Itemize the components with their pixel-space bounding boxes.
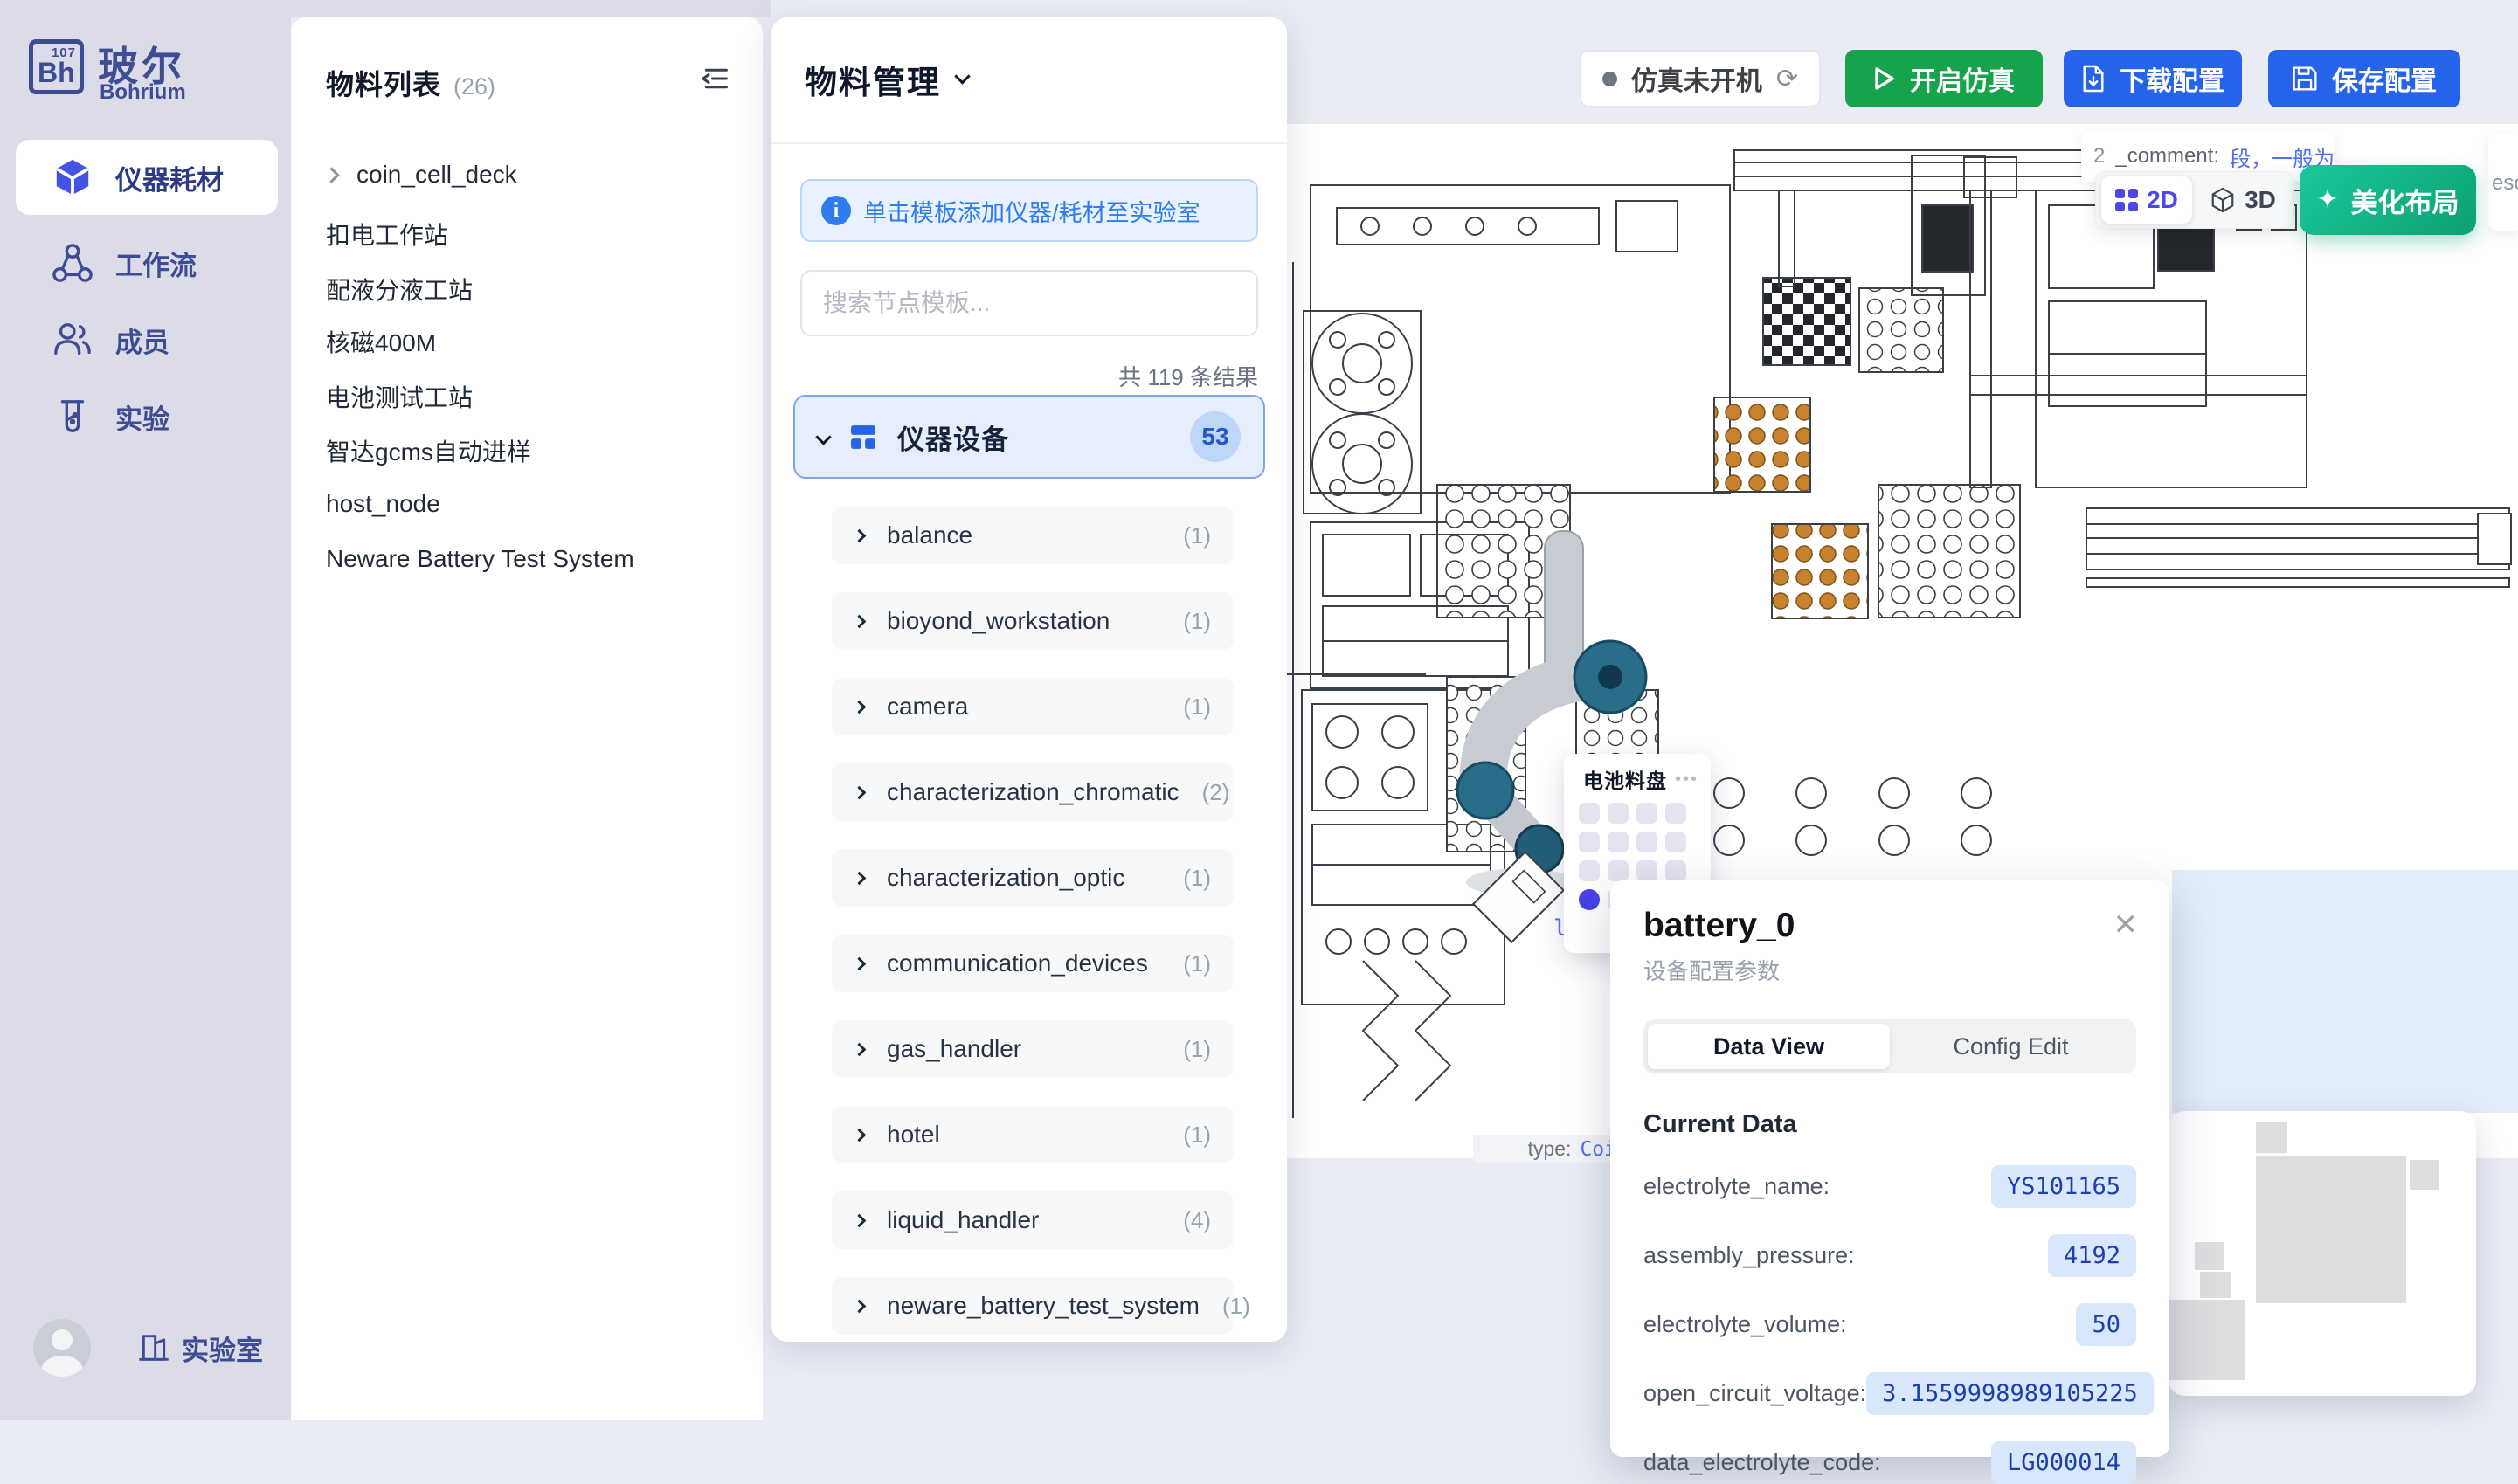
sidebar-item-instruments[interactable]: 仪器耗材 bbox=[16, 140, 278, 215]
template-item-label: communication_devices bbox=[887, 949, 1160, 977]
sidebar-item-label: 仪器耗材 bbox=[115, 158, 224, 197]
material-item-label: 核磁400M bbox=[326, 324, 436, 359]
template-item-hotel[interactable]: hotel (1) bbox=[832, 1106, 1234, 1163]
template-item-count: (1) bbox=[1183, 608, 1211, 635]
material-item[interactable]: 扣电工作站 bbox=[326, 215, 728, 253]
materials-count: (26) bbox=[453, 73, 495, 100]
grid-2d-icon bbox=[2115, 189, 2138, 211]
template-item-liquid-handler[interactable]: liquid_handler (4) bbox=[832, 1191, 1234, 1249]
data-row-value: 50 bbox=[2076, 1303, 2136, 1346]
data-row: open_circuit_voltage: 3.1559998989105225 bbox=[1643, 1372, 2136, 1415]
template-panel: 物料管理 i 单击模板添加仪器/耗材至实验室 共 119 条结果 仪器设备 53… bbox=[771, 17, 1287, 1342]
save-icon bbox=[2292, 66, 2318, 92]
template-item-characterization-optic[interactable]: characterization_optic (1) bbox=[832, 849, 1234, 907]
data-row: data_electrolyte_code: LG000014 bbox=[1643, 1441, 2136, 1484]
play-icon bbox=[1873, 66, 1896, 91]
download-config-label: 下载配置 bbox=[2120, 59, 2224, 98]
tray-cell[interactable] bbox=[1608, 832, 1629, 852]
save-config-button[interactable]: 保存配置 bbox=[2268, 50, 2460, 107]
material-item-label: Neware Battery Test System bbox=[326, 545, 634, 573]
category-label: 仪器设备 bbox=[897, 418, 1169, 457]
template-item-label: characterization_chromatic bbox=[887, 778, 1179, 806]
hint-banner-text: 单击模板添加仪器/耗材至实验室 bbox=[863, 194, 1200, 228]
toggle-2d[interactable]: 2D bbox=[2101, 176, 2192, 224]
toggle-3d[interactable]: 3D bbox=[2197, 176, 2288, 224]
template-item-count: (1) bbox=[1183, 1122, 1211, 1149]
chevron-right-icon bbox=[853, 1213, 867, 1227]
minimap-block bbox=[2195, 1242, 2224, 1270]
template-item-gas-handler[interactable]: gas_handler (1) bbox=[832, 1020, 1234, 1078]
chevron-right-icon bbox=[853, 1299, 867, 1313]
minimap-block bbox=[2256, 1122, 2287, 1153]
start-simulation-label: 开启仿真 bbox=[1910, 59, 2015, 98]
device-config-popup: battery_0 ✕ 设备配置参数 Data View Config Edit… bbox=[1610, 880, 2169, 1457]
template-item-label: balance bbox=[887, 521, 1160, 549]
template-item-count: (1) bbox=[1183, 1036, 1211, 1063]
chevron-right-icon bbox=[853, 956, 867, 970]
data-row-value: YS101165 bbox=[1991, 1165, 2136, 1208]
minimap-block bbox=[2256, 1156, 2406, 1303]
material-item-label: 电池测试工站 bbox=[326, 379, 473, 414]
sparkles-icon: ✦ bbox=[2316, 187, 2338, 213]
top-strip bbox=[291, 0, 771, 17]
avatar[interactable] bbox=[33, 1319, 91, 1377]
tray-cell[interactable] bbox=[1579, 803, 1600, 824]
tray-cell[interactable] bbox=[1636, 832, 1657, 852]
template-item-label: characterization_optic bbox=[887, 864, 1160, 892]
status-label: 仿真未开机 bbox=[1631, 59, 1762, 98]
lab-switcher-label: 实验室 bbox=[182, 1329, 263, 1368]
save-config-label: 保存配置 bbox=[2332, 59, 2437, 98]
minimap[interactable] bbox=[2169, 1111, 2476, 1396]
result-count: 共 119 条结果 bbox=[1118, 360, 1258, 392]
panel-title: 物料管理 bbox=[805, 56, 941, 103]
tray-cell[interactable] bbox=[1579, 860, 1600, 881]
data-row-label: data_electrolyte_code: bbox=[1643, 1449, 1881, 1476]
material-item-label: coin_cell_deck bbox=[356, 161, 517, 189]
chevron-right-icon bbox=[853, 614, 867, 628]
template-item-communication-devices[interactable]: communication_devices (1) bbox=[832, 935, 1234, 992]
data-row-value: LG000014 bbox=[1991, 1441, 2136, 1484]
chevron-down-icon bbox=[815, 429, 831, 445]
lab-switcher[interactable]: 实验室 bbox=[136, 1329, 263, 1368]
category-badge: 53 bbox=[1190, 411, 1241, 462]
template-item-label: liquid_handler bbox=[887, 1206, 1160, 1234]
template-item-count: (1) bbox=[1183, 950, 1211, 977]
beautify-layout-button[interactable]: ✦ 美化布局 bbox=[2300, 165, 2476, 235]
file-download-icon bbox=[2081, 65, 2106, 93]
refresh-icon[interactable]: ⟳ bbox=[1776, 64, 1798, 94]
category-instruments[interactable]: 仪器设备 53 bbox=[793, 395, 1265, 479]
cube-icon bbox=[52, 157, 93, 197]
workflow-icon bbox=[52, 243, 93, 283]
view-mode-toggle: 2D 3D bbox=[2095, 171, 2294, 229]
sidebar-item-workflow[interactable]: 工作流 bbox=[16, 225, 278, 300]
simulation-status-pill[interactable]: 仿真未开机 ⟳ bbox=[1580, 50, 1821, 107]
current-data-heading: Current Data bbox=[1643, 1110, 2136, 1139]
tooltip-prefix: 2 bbox=[2093, 144, 2105, 169]
material-item-label: host_node bbox=[326, 490, 440, 518]
close-icon[interactable]: ✕ bbox=[2113, 910, 2139, 940]
template-item-characterization-chromatic[interactable]: characterization_chromatic (2) bbox=[832, 763, 1234, 821]
clipped-text: esou bbox=[2492, 171, 2518, 196]
data-row-label: electrolyte_volume: bbox=[1643, 1311, 1847, 1338]
search-input[interactable] bbox=[800, 270, 1258, 336]
more-menu-icon[interactable]: ••• bbox=[1675, 770, 1698, 790]
data-row-value: 3.1559998989105225 bbox=[1866, 1372, 2154, 1415]
brand-logo: 107 Bh bbox=[29, 39, 84, 94]
start-simulation-button[interactable]: 开启仿真 bbox=[1845, 50, 2043, 107]
members-icon bbox=[52, 320, 93, 360]
type-row-fragment: type: Coi bbox=[1473, 1106, 1622, 1163]
download-config-button[interactable]: 下载配置 bbox=[2064, 50, 2242, 107]
tray-cell[interactable] bbox=[1608, 803, 1629, 824]
template-item-count: (1) bbox=[1183, 694, 1211, 721]
tray-cell[interactable] bbox=[1636, 803, 1657, 824]
building-icon bbox=[136, 1330, 171, 1365]
template-item-bioyond-workstation[interactable]: bioyond_workstation (1) bbox=[832, 592, 1234, 650]
template-item-count: (1) bbox=[1183, 522, 1211, 549]
hint-banner: i 单击模板添加仪器/耗材至实验室 bbox=[800, 179, 1258, 242]
data-row: assembly_pressure: 4192 bbox=[1643, 1234, 2136, 1277]
brand-subname: Bohrium bbox=[100, 80, 186, 105]
template-item-label: hotel bbox=[887, 1121, 1160, 1149]
chevron-right-icon bbox=[853, 785, 867, 799]
divider bbox=[771, 142, 1287, 144]
sidebar: 107 Bh 玻尔 Bohrium 仪器耗材 工作流 成员 bbox=[0, 0, 291, 1420]
brand-symbol: Bh bbox=[38, 57, 75, 89]
status-dot bbox=[1602, 72, 1617, 86]
collapse-list-icon[interactable] bbox=[700, 65, 731, 93]
chevron-right-icon bbox=[853, 528, 867, 542]
popup-subtitle: 设备配置参数 bbox=[1643, 954, 2136, 986]
material-item[interactable]: 电池测试工站 bbox=[326, 377, 728, 416]
beautify-layout-label: 美化布局 bbox=[2351, 181, 2459, 220]
material-item-label: 智达gcms自动进样 bbox=[326, 433, 531, 468]
template-item-count: (4) bbox=[1183, 1207, 1211, 1234]
data-row: electrolyte_name: YS101165 bbox=[1643, 1165, 2136, 1208]
sidebar-item-label: 成员 bbox=[115, 321, 169, 360]
devices-grid-icon bbox=[850, 424, 876, 450]
template-item-camera[interactable]: camera (1) bbox=[832, 678, 1234, 735]
tab-data-view[interactable]: Data View bbox=[1648, 1024, 1890, 1069]
minimap-block bbox=[2410, 1160, 2439, 1190]
material-item[interactable]: 智达gcms自动进样 bbox=[326, 431, 728, 470]
toggle-3d-label: 3D bbox=[2245, 186, 2276, 214]
template-item-count: (1) bbox=[1183, 865, 1211, 892]
materials-panel: 物料列表 (26) coin_cell_deck 扣电工作站 配液分液工站 核磁… bbox=[291, 17, 763, 1420]
tooltip-key: _comment: bbox=[2115, 144, 2219, 169]
template-item-label: gas_handler bbox=[887, 1035, 1160, 1063]
test-tube-icon bbox=[52, 397, 93, 437]
template-item-count: (1) bbox=[1222, 1293, 1250, 1320]
tray-cell-selected[interactable] bbox=[1579, 889, 1600, 910]
data-row: electrolyte_volume: 50 bbox=[1643, 1303, 2136, 1346]
template-item-label: neware_battery_test_system bbox=[887, 1292, 1200, 1320]
sidebar-item-label: 实验 bbox=[115, 397, 169, 437]
toggle-2d-label: 2D bbox=[2147, 186, 2178, 214]
info-icon: i bbox=[821, 196, 851, 225]
type-label: type: bbox=[1528, 1137, 1572, 1161]
popup-tabs: Data View Config Edit bbox=[1643, 1019, 2136, 1073]
minimap-block bbox=[2169, 1300, 2245, 1380]
tray-cell[interactable] bbox=[1579, 832, 1600, 852]
minimap-block bbox=[2200, 1272, 2231, 1298]
chevron-down-icon[interactable] bbox=[954, 68, 970, 84]
tray-cell[interactable] bbox=[1636, 860, 1657, 881]
material-item[interactable]: host_node bbox=[326, 485, 728, 523]
sidebar-item-experiments[interactable]: 实验 bbox=[16, 379, 278, 454]
material-item[interactable]: 配液分液工站 bbox=[326, 270, 728, 308]
material-item-expandable[interactable]: coin_cell_deck bbox=[326, 155, 728, 194]
popup-title: battery_0 bbox=[1643, 907, 2136, 945]
material-item[interactable]: 核磁400M bbox=[326, 322, 728, 361]
chevron-right-icon bbox=[323, 167, 339, 183]
clipped-panel-fragment: esou bbox=[2488, 133, 2518, 231]
tab-config-edit[interactable]: Config Edit bbox=[1890, 1024, 2132, 1069]
chevron-right-icon bbox=[853, 871, 867, 885]
material-item[interactable]: Neware Battery Test System bbox=[326, 540, 728, 578]
data-row-label: assembly_pressure: bbox=[1643, 1242, 1855, 1269]
sidebar-item-label: 工作流 bbox=[115, 244, 197, 283]
template-item-balance[interactable]: balance (1) bbox=[832, 507, 1234, 564]
materials-title: 物料列表 bbox=[326, 63, 441, 103]
chevron-right-icon bbox=[853, 700, 867, 714]
template-item-label: camera bbox=[887, 693, 1160, 721]
template-item-count: (2) bbox=[1202, 779, 1230, 806]
tray-cell[interactable] bbox=[1608, 860, 1629, 881]
template-item-label: bioyond_workstation bbox=[887, 607, 1160, 635]
data-row-label: open_circuit_voltage: bbox=[1643, 1380, 1866, 1407]
cube-3d-icon bbox=[2210, 186, 2236, 214]
tray-cell[interactable] bbox=[1665, 803, 1686, 824]
tray-cell[interactable] bbox=[1665, 832, 1686, 852]
material-item-label: 扣电工作站 bbox=[326, 217, 448, 252]
tray-cell[interactable] bbox=[1665, 860, 1686, 881]
data-row-value: 4192 bbox=[2048, 1234, 2136, 1277]
data-row-label: electrolyte_name: bbox=[1643, 1173, 1830, 1200]
battery-tray-title: 电池料盘 bbox=[1583, 764, 1667, 794]
chevron-right-icon bbox=[853, 1042, 867, 1056]
template-item-neware-battery-test-system[interactable]: neware_battery_test_system (1) bbox=[832, 1277, 1234, 1335]
sidebar-item-members[interactable]: 成员 bbox=[16, 302, 278, 377]
chevron-right-icon bbox=[853, 1128, 867, 1142]
material-item-label: 配液分液工站 bbox=[326, 272, 473, 307]
